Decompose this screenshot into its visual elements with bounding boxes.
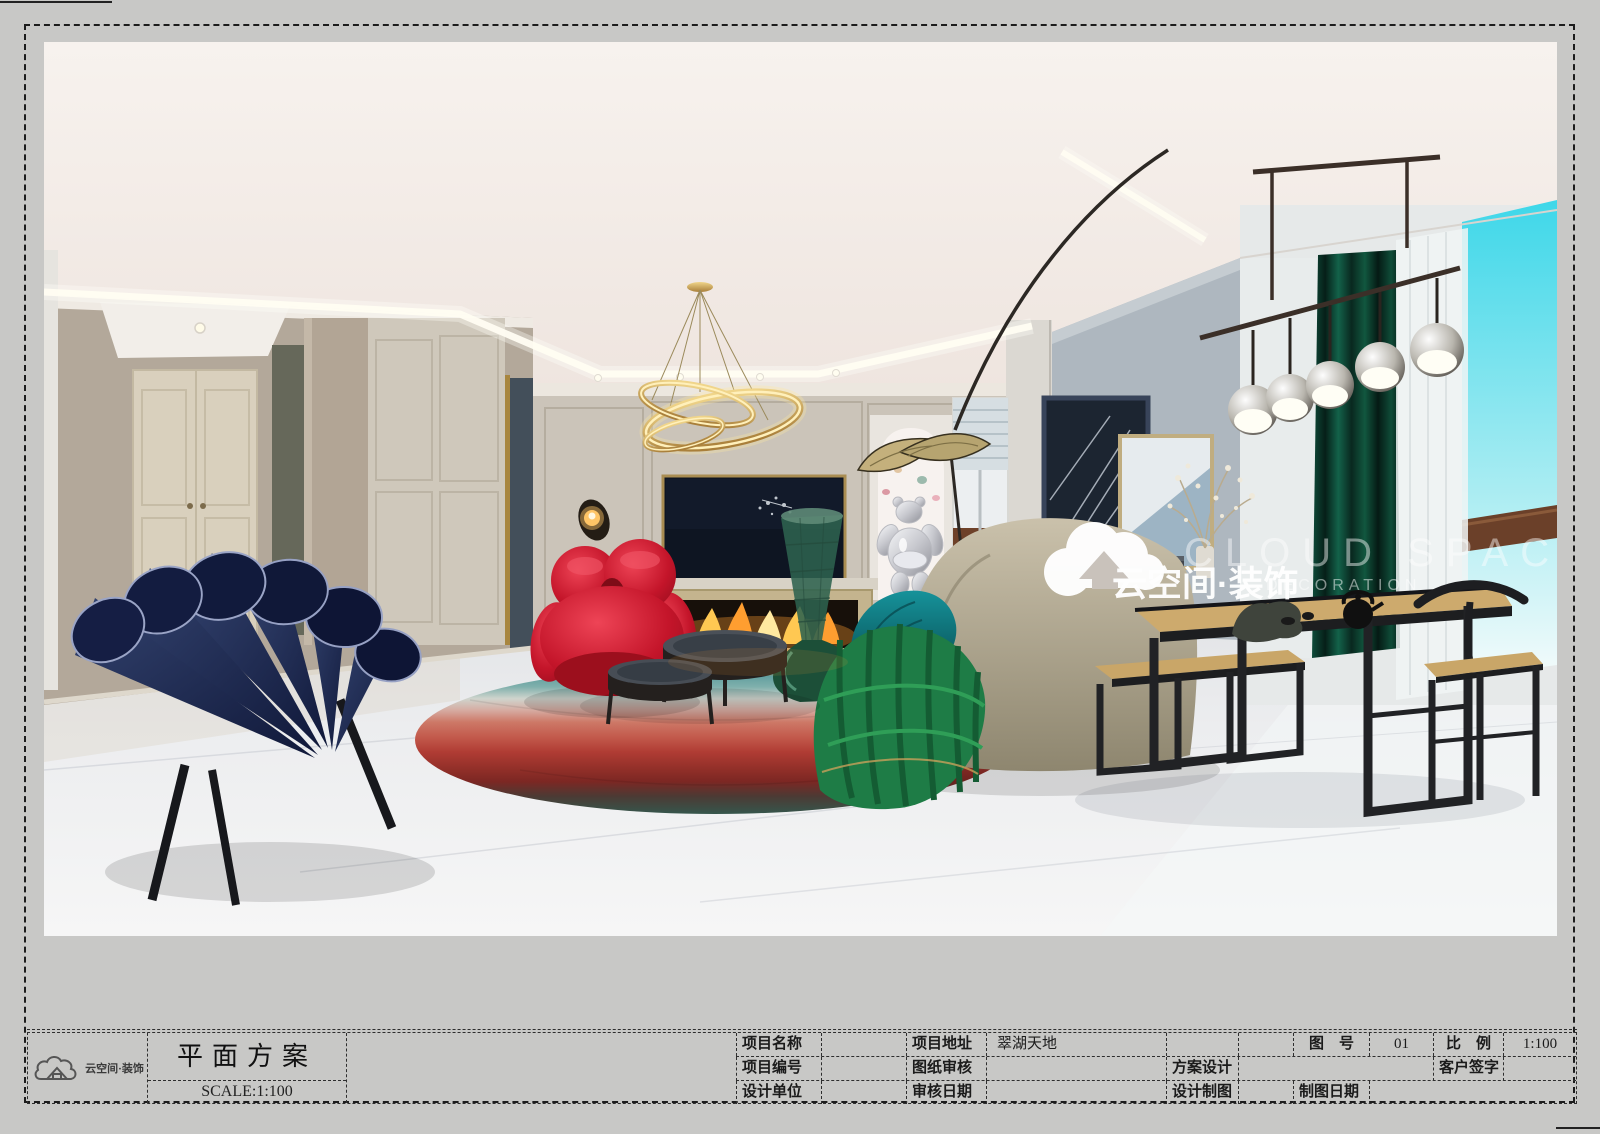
- field-client-signature-value: [1503, 1057, 1576, 1081]
- field-design-unit-label: 设计单位: [736, 1081, 821, 1104]
- field-scheme-design-value: [1238, 1057, 1433, 1081]
- field-empty: [1166, 1033, 1238, 1056]
- field-project-number-value: [821, 1057, 906, 1081]
- corner-mark-bottom-right: [1556, 1127, 1600, 1129]
- title-block-row-1: 项目名称 项目地址 翠湖天地 图 号 01 比 例 1:100: [736, 1033, 1576, 1056]
- title-block: 云空间·装饰 平面方案 SCALE:1:100 项目名称 项目地址 翠湖天地 图…: [27, 1032, 1577, 1104]
- drawing-sheet: CLOUD SPACE DECORATION 云空间·装饰 云空间·装饰 平面方…: [0, 0, 1600, 1134]
- title-block-fields: 项目名称 项目地址 翠湖天地 图 号 01 比 例 1:100 项目编号 图纸审…: [736, 1033, 1576, 1103]
- field-empty: [1238, 1033, 1293, 1056]
- field-drawing-review-value: [986, 1057, 1166, 1081]
- field-project-address-label: 项目地址: [906, 1033, 986, 1056]
- field-design-drafting-value: [1238, 1081, 1293, 1104]
- door-handle: [187, 503, 193, 509]
- title-block-spacer: [346, 1033, 736, 1103]
- field-sheet-number-label: 图 号: [1293, 1033, 1369, 1056]
- field-drafting-date-label: 制图日期: [1293, 1081, 1369, 1104]
- field-drawing-review-label: 图纸审核: [906, 1057, 986, 1081]
- field-design-unit-value: [821, 1081, 906, 1104]
- field-scale-label: 比 例: [1433, 1033, 1503, 1056]
- field-project-name-label: 项目名称: [736, 1033, 821, 1056]
- field-project-name-value: [821, 1033, 906, 1056]
- field-drafting-date-value: [1369, 1081, 1576, 1104]
- green-ribbed-chaise: [814, 624, 985, 809]
- watermark-cn: 云空间·装饰: [1112, 565, 1299, 604]
- cloud-logo-icon: [31, 1049, 83, 1087]
- field-scheme-design-label: 方案设计: [1166, 1057, 1238, 1081]
- gold-trim: [505, 375, 510, 645]
- field-client-signature-label: 客户签字: [1433, 1057, 1503, 1081]
- field-scale-value: 1:100: [1503, 1033, 1576, 1056]
- field-review-date-value: [986, 1081, 1166, 1104]
- tea-cup: [1302, 612, 1314, 620]
- field-project-number-label: 项目编号: [736, 1057, 821, 1081]
- field-review-date-label: 审核日期: [906, 1081, 986, 1104]
- title-block-row-3: 设计单位 审核日期 设计制图 制图日期: [736, 1080, 1576, 1104]
- recessed-downlight: [195, 323, 205, 333]
- title-block-row-2: 项目编号 图纸审核 方案设计 客户签字: [736, 1056, 1576, 1081]
- company-logo-cell: 云空间·装饰: [28, 1033, 147, 1103]
- fire-glow: [668, 648, 848, 676]
- drawing-scale: SCALE:1:100: [148, 1080, 346, 1103]
- field-project-address-value: 翠湖天地: [986, 1033, 1166, 1056]
- slate-pilaster: [510, 378, 533, 648]
- interior-rendering: CLOUD SPACE DECORATION 云空间·装饰: [44, 42, 1557, 936]
- wall-paneling: [368, 318, 505, 645]
- corner-mark-top-left: [0, 1, 112, 3]
- field-sheet-number-value: 01: [1369, 1033, 1433, 1056]
- sheer-curtain: [1396, 228, 1468, 700]
- drawing-title: 平面方案: [148, 1033, 346, 1080]
- company-name: 云空间·装饰: [85, 1060, 144, 1076]
- drawing-title-cell: 平面方案 SCALE:1:100: [147, 1033, 346, 1103]
- field-design-drafting-label: 设计制图: [1166, 1081, 1238, 1104]
- tea-cup: [1281, 617, 1295, 625]
- interior-rendering-canvas: CLOUD SPACE DECORATION 云空间·装饰: [44, 42, 1557, 936]
